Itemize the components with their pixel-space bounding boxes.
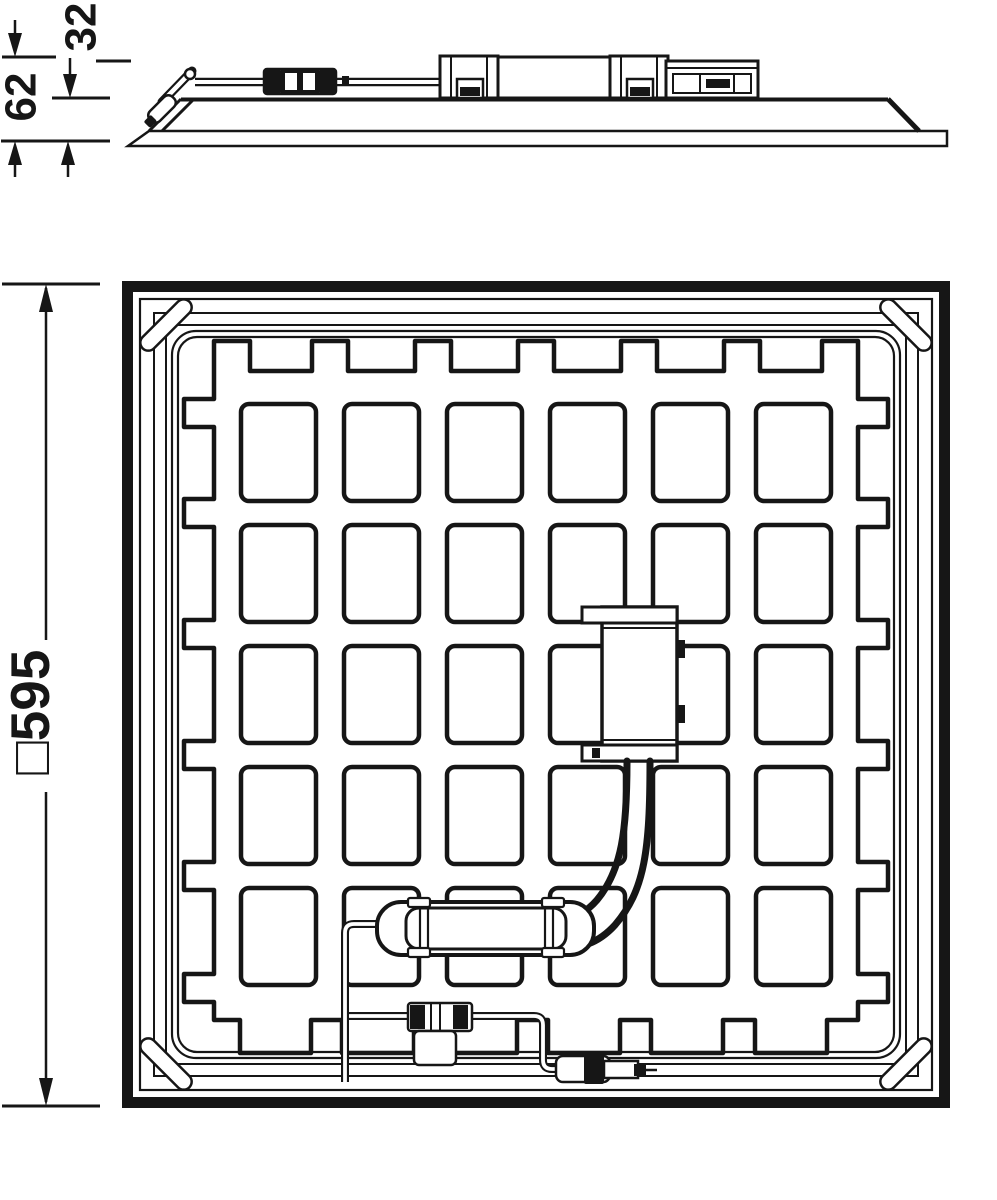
cable-connector-side	[264, 69, 349, 94]
grid-cell-row	[241, 646, 831, 743]
drawing-page: 62 32	[0, 0, 997, 1200]
wire-connector	[408, 1003, 472, 1065]
arrow-down-icon	[39, 1078, 53, 1106]
driver-clamp-right	[610, 56, 668, 98]
grid-cell-row	[241, 404, 831, 501]
arrow-up-icon	[61, 141, 75, 165]
driver-box-side	[440, 56, 758, 98]
dim-32-label: 32	[57, 3, 106, 52]
dim-62-label: 62	[0, 73, 46, 122]
rear-view-drawing	[128, 287, 945, 1103]
technical-drawing: 62 32	[0, 0, 997, 1200]
grid-cell-row	[241, 767, 831, 864]
dimension-baseline	[1, 141, 110, 177]
grid-cell-row	[241, 525, 831, 622]
dimension-595: □595	[0, 284, 100, 1106]
arrow-up-icon	[39, 284, 53, 312]
arrow-down-icon	[8, 33, 22, 57]
inline-driver	[377, 898, 594, 957]
side-view-drawing	[128, 56, 947, 146]
dim-595-label: □595	[0, 650, 61, 775]
panel-face-profile	[128, 99, 947, 146]
arrow-down-icon	[63, 74, 77, 98]
dimension-32: 32	[52, 3, 110, 98]
arrow-up-icon	[8, 141, 22, 165]
terminal-box-side	[666, 61, 758, 98]
driver-clamp-left	[440, 56, 498, 98]
